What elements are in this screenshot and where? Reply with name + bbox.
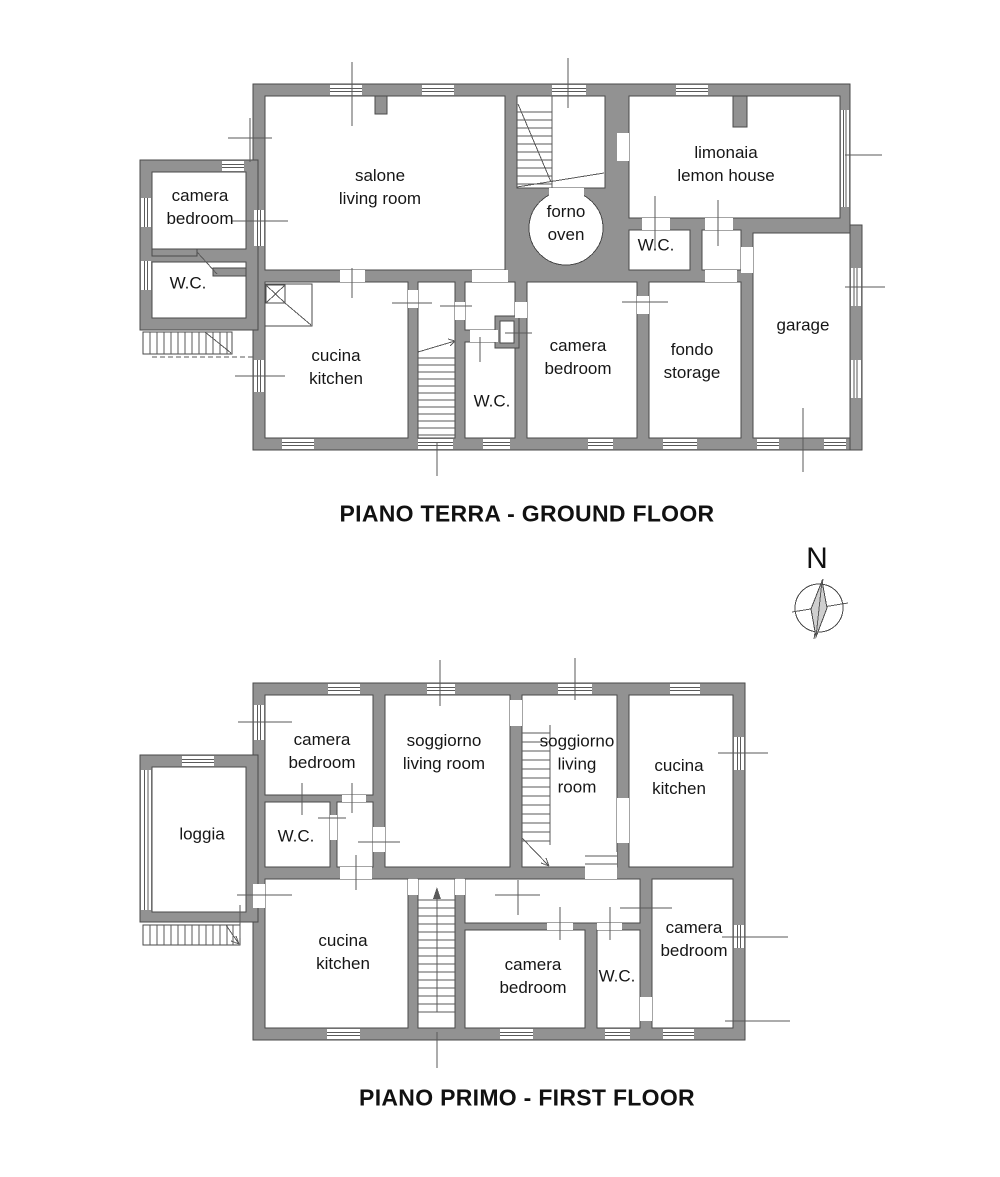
room-label-ff-camera-se: camera bedroom [660, 916, 727, 962]
external-stairs-ground [143, 332, 253, 357]
room-label-gf-limonaia: limonaia lemon house [677, 141, 774, 187]
room-label-gf-fondo: fondo storage [664, 338, 721, 384]
external-stairs-first [143, 925, 240, 945]
floor-plan-drawing [0, 0, 1000, 1177]
room-label-ff-cucina-ne: cucina kitchen [652, 754, 706, 800]
room-label-ff-camera-s: camera bedroom [499, 953, 566, 999]
room-label-gf-salone: salone living room [339, 164, 421, 210]
room-label-gf-annex-wc: W.C. [170, 272, 207, 295]
room-label-ff-loggia: loggia [179, 823, 224, 846]
room-label-ff-camera-nw: camera bedroom [288, 728, 355, 774]
room-label-ff-soggiorno-left: soggiorno living room [403, 729, 485, 775]
floorplan-page: camera bedroom W.C. salone living room f… [0, 0, 1000, 1177]
compass-rose [792, 579, 848, 639]
room-label-gf-forno: forno oven [547, 200, 586, 246]
room-label-gf-wc-upper: W.C. [638, 234, 675, 257]
room-label-gf-camera: camera bedroom [544, 334, 611, 380]
compass-north-label: N [806, 542, 828, 576]
room-label-ff-wc-lower: W.C. [599, 965, 636, 988]
first-floor-title: PIANO PRIMO - FIRST FLOOR [359, 1085, 695, 1112]
ground-floor-plan [140, 58, 885, 476]
room-label-gf-garage: garage [777, 314, 830, 337]
room-label-gf-wc-hall: W.C. [474, 390, 511, 413]
room-label-gf-cucina: cucina kitchen [309, 344, 363, 390]
room-label-ff-wc-upper: W.C. [278, 825, 315, 848]
ground-floor-title: PIANO TERRA - GROUND FLOOR [340, 501, 715, 528]
room-label-gf-annex-bedroom: camera bedroom [166, 184, 233, 230]
room-label-ff-cucina-sw: cucina kitchen [316, 929, 370, 975]
first-floor-plan [140, 658, 790, 1068]
room-label-ff-soggiorno-right: soggiorno living room [540, 730, 615, 799]
